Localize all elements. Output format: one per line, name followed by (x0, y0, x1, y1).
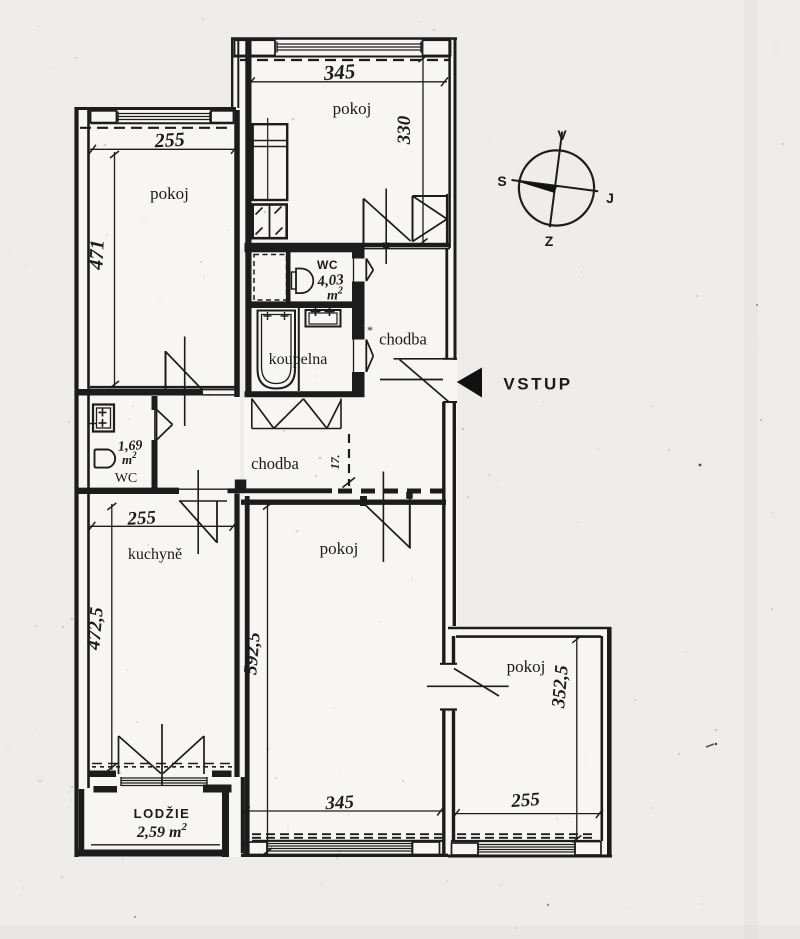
svg-text:kuchyně: kuchyně (128, 546, 182, 563)
svg-text:WC: WC (115, 471, 138, 486)
svg-text:352,5: 352,5 (548, 664, 573, 710)
svg-text:2,59 m2: 2,59 m2 (136, 821, 187, 841)
svg-text:472,5: 472,5 (83, 606, 108, 652)
svg-text:V: V (557, 127, 567, 143)
svg-text:330: 330 (394, 115, 415, 145)
svg-text:471: 471 (85, 239, 109, 271)
svg-text:S: S (497, 173, 506, 189)
svg-text:*: * (367, 323, 373, 337)
svg-text:WC: WC (317, 258, 338, 272)
svg-text:255: 255 (153, 129, 185, 153)
svg-text:chodba: chodba (379, 330, 427, 349)
svg-text:pokoj: pokoj (333, 99, 372, 118)
svg-text:VSTUP: VSTUP (503, 375, 572, 394)
svg-text:LODŽIE: LODŽIE (134, 806, 191, 821)
svg-text:J: J (606, 190, 614, 206)
svg-text:chodba: chodba (251, 454, 299, 473)
svg-text:koupelna: koupelna (269, 351, 328, 368)
svg-text:345: 345 (324, 792, 355, 815)
svg-text:pokoj: pokoj (507, 657, 546, 676)
svg-text:Z: Z (545, 233, 554, 249)
svg-text:pokoj: pokoj (150, 184, 189, 203)
svg-text:255: 255 (510, 789, 541, 812)
svg-text:17.: 17. (328, 454, 343, 469)
svg-text:345: 345 (322, 59, 356, 85)
svg-text:592,5: 592,5 (240, 631, 265, 676)
svg-text:pokoj: pokoj (320, 539, 359, 558)
svg-text:255: 255 (126, 507, 157, 530)
